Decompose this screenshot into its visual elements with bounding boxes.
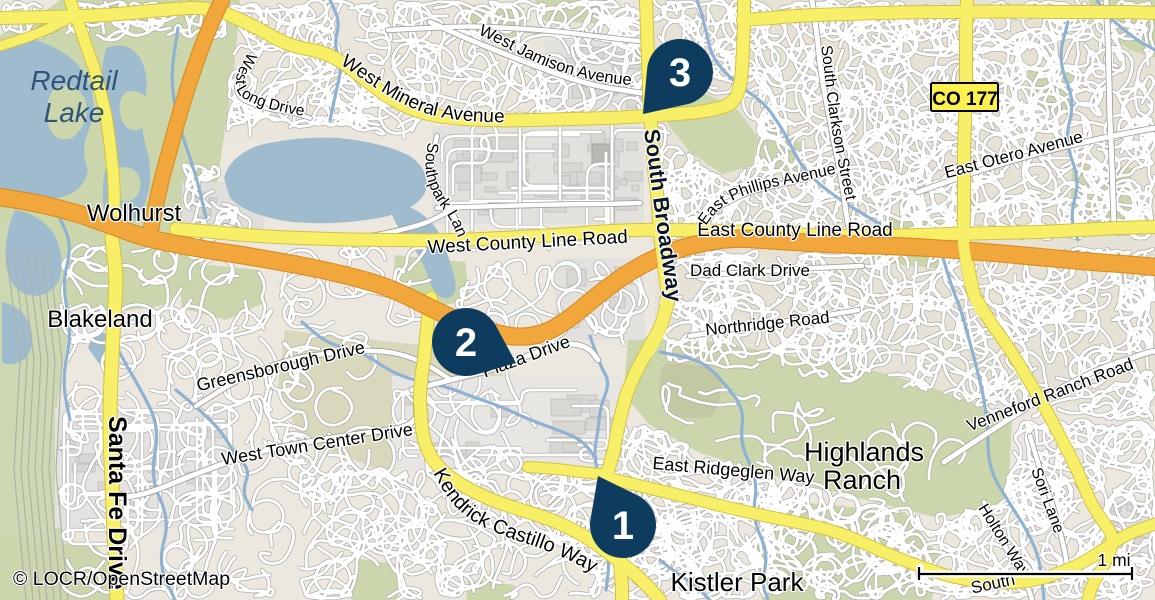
- svg-text:Lake: Lake: [44, 97, 105, 128]
- svg-text:3: 3: [669, 51, 691, 95]
- svg-text:CO 177: CO 177: [932, 89, 997, 110]
- svg-text:Blakeland: Blakeland: [47, 306, 152, 333]
- svg-text:Kistler Park: Kistler Park: [671, 567, 805, 597]
- svg-text:Wolhurst: Wolhurst: [87, 200, 182, 227]
- svg-text:1: 1: [612, 504, 634, 548]
- svg-text:Ranch: Ranch: [823, 465, 901, 495]
- svg-text:Santa Fe Drive: Santa Fe Drive: [103, 416, 131, 590]
- svg-text:2: 2: [455, 321, 477, 365]
- svg-text:Redtail: Redtail: [30, 65, 118, 96]
- svg-text:1 mi: 1 mi: [1097, 550, 1130, 570]
- svg-text:Dad Clark Drive: Dad Clark Drive: [690, 261, 810, 280]
- svg-text:East County Line Road: East County Line Road: [697, 220, 892, 241]
- svg-text:© LOCR/OpenStreetMap: © LOCR/OpenStreetMap: [13, 568, 230, 590]
- svg-text:Highlands: Highlands: [804, 437, 924, 467]
